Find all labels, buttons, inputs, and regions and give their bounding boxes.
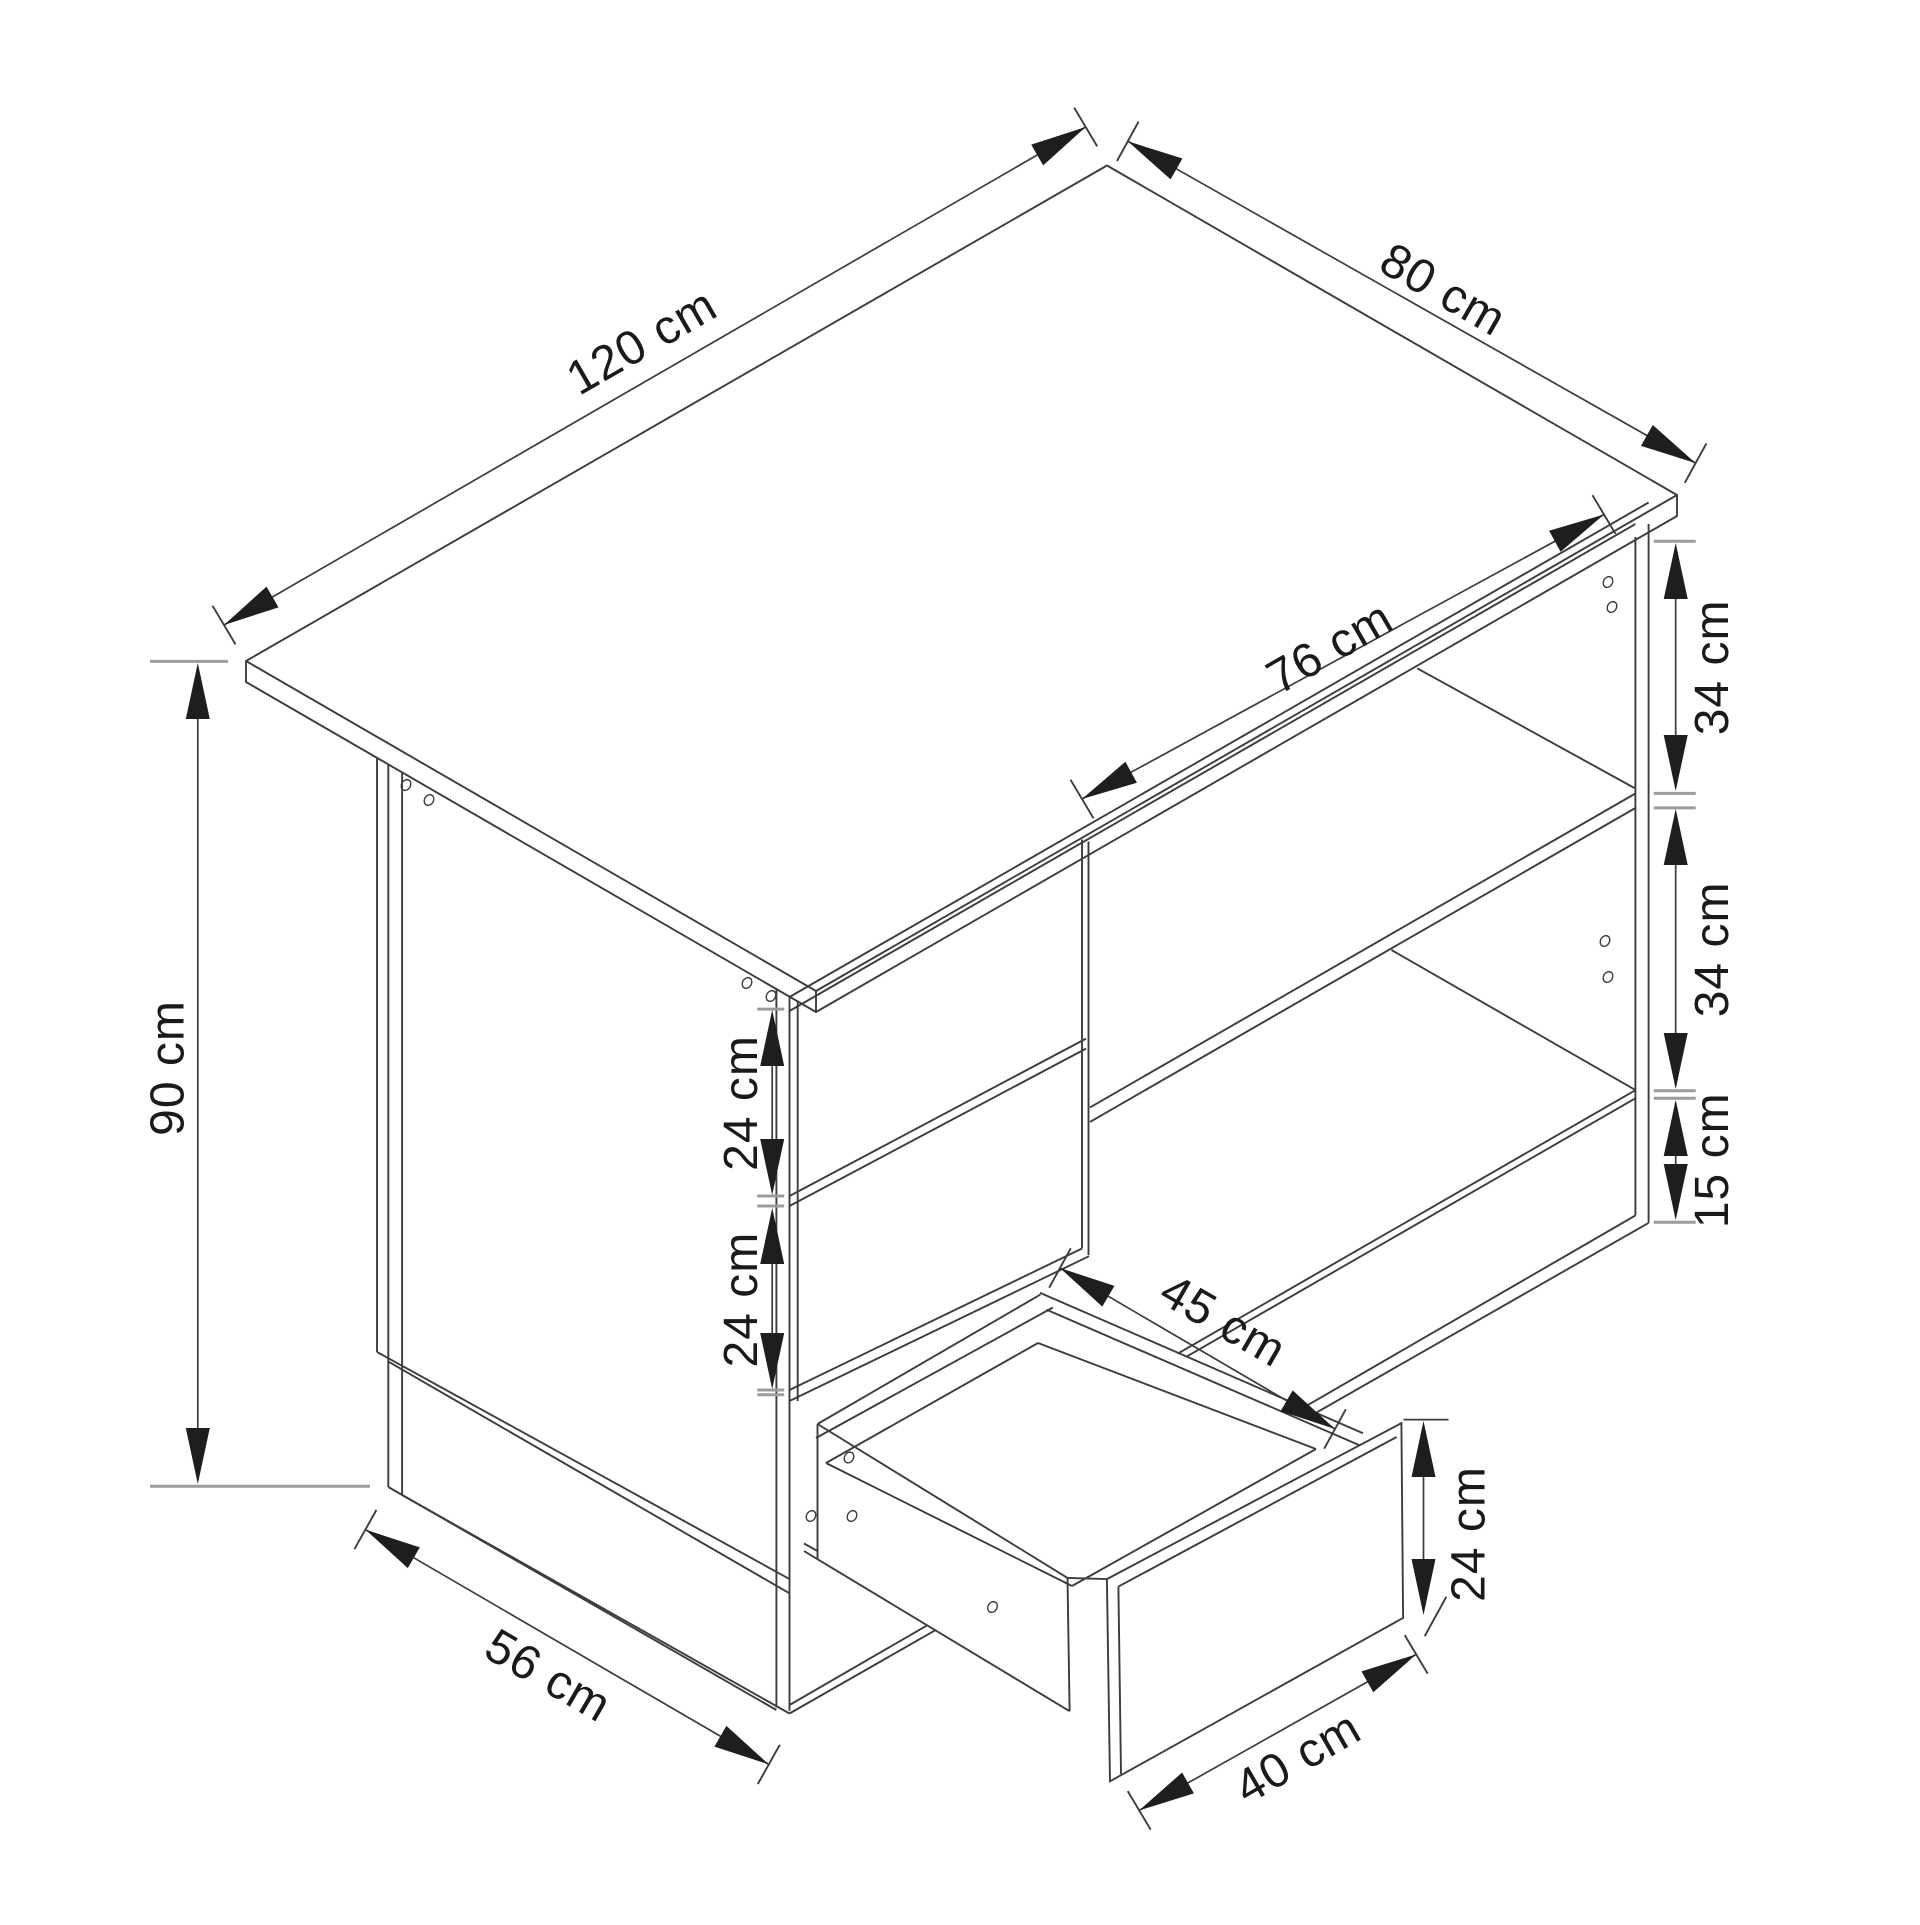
svg-text:24 cm: 24 cm [715, 1232, 768, 1368]
svg-text:34 cm: 34 cm [1686, 882, 1739, 1018]
svg-text:90 cm: 90 cm [142, 1000, 195, 1136]
svg-text:34 cm: 34 cm [1686, 600, 1739, 736]
svg-text:15 cm: 15 cm [1686, 1092, 1739, 1228]
svg-text:24 cm: 24 cm [1443, 1466, 1496, 1602]
svg-text:24 cm: 24 cm [715, 1035, 768, 1171]
